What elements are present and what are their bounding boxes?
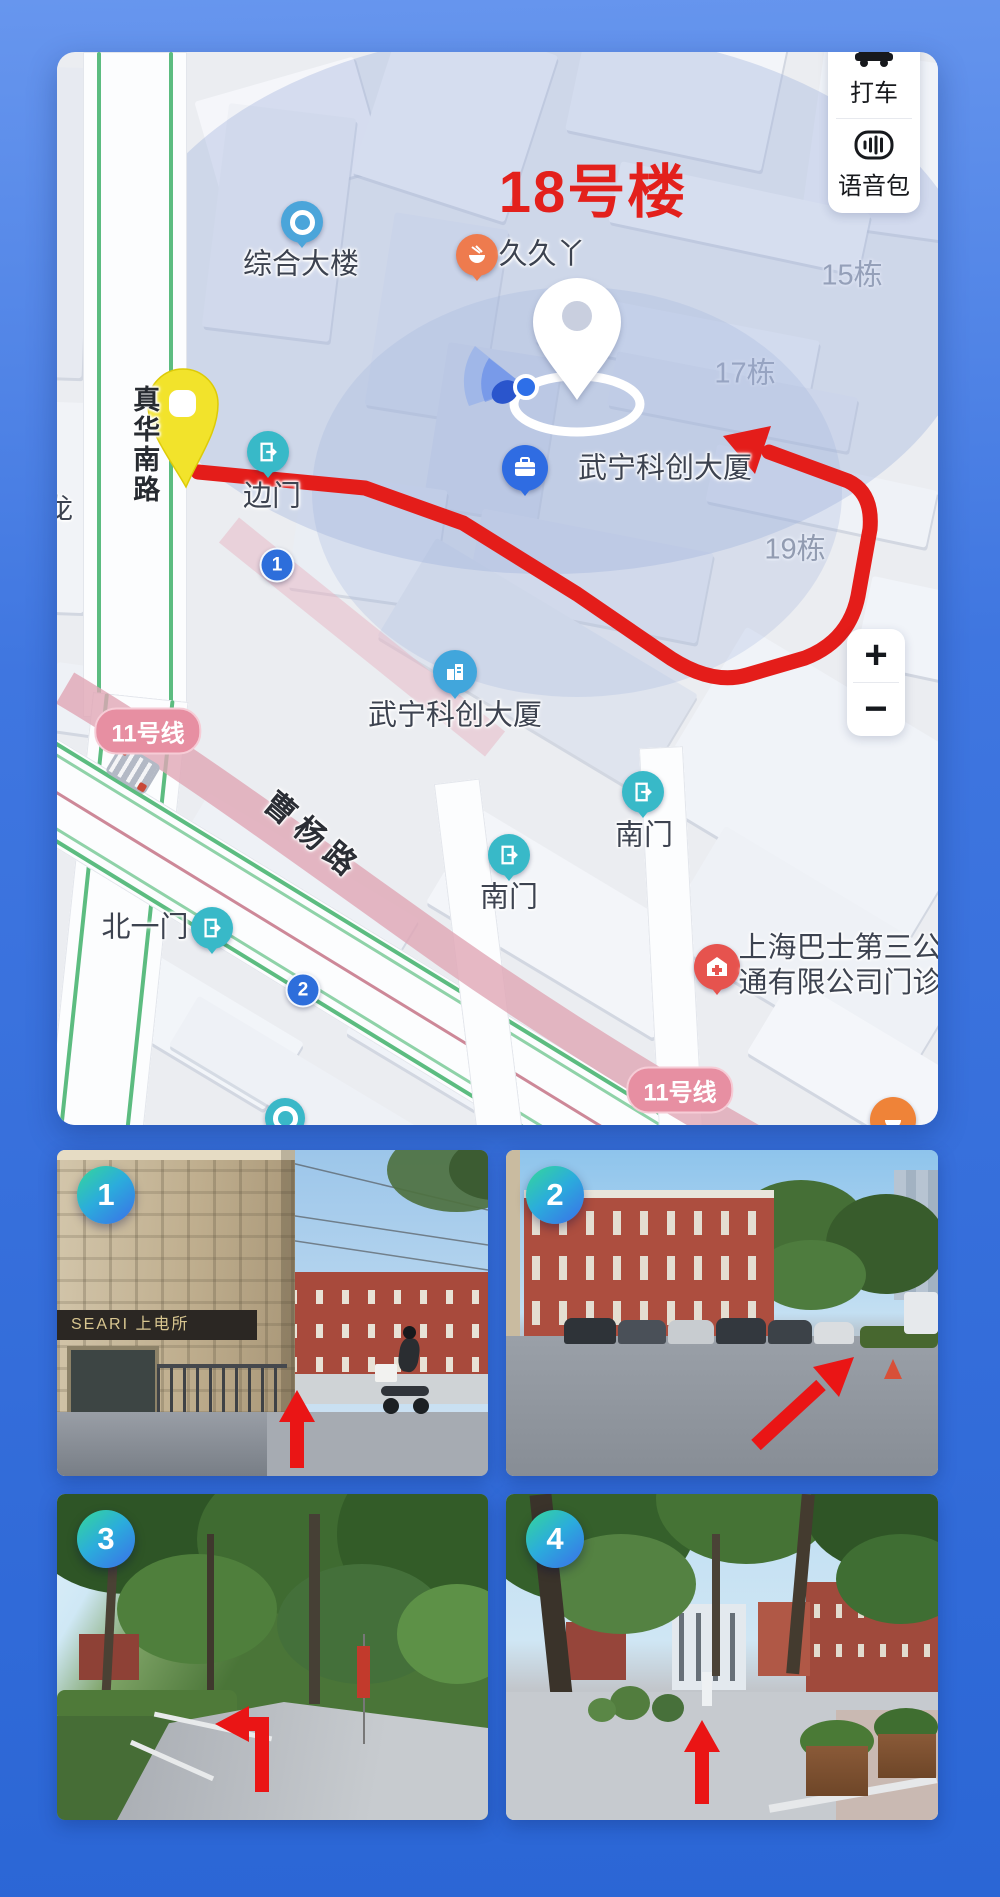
flyer-page: 1 2 18号楼 综合大楼 久久丫 15栋 17栋 19栋 武宁科创大厦 边门 … xyxy=(0,0,1000,1897)
gate-icon xyxy=(498,844,520,866)
photo-1-badge: 1 xyxy=(77,1166,135,1224)
label-clinic: 上海巴士第三公 通有限公司门诊 xyxy=(738,931,938,1001)
bowl-icon xyxy=(465,243,489,267)
building-icon xyxy=(443,660,467,684)
taxi-car-icon xyxy=(852,52,896,68)
label-snack-shop: 久久丫 xyxy=(498,238,585,273)
taxi-button[interactable]: 打车 xyxy=(828,52,920,108)
poi-north-gate-pin[interactable] xyxy=(191,907,233,949)
zoom-control: + − xyxy=(847,629,905,736)
waypoint-1-badge: 1 xyxy=(260,548,295,583)
label-wuning-tower-2: 武宁科创大厦 xyxy=(368,699,542,734)
route-photo-1: SEARI 上电所 1 xyxy=(57,1150,488,1476)
photo-4-badge: 4 xyxy=(526,1510,584,1568)
user-location-icon xyxy=(515,376,537,398)
gate-icon xyxy=(632,781,654,803)
label-side-gate: 边门 xyxy=(243,480,301,515)
gate-icon xyxy=(201,917,223,939)
poi-food-pin[interactable] xyxy=(456,234,498,276)
waypoint-2-badge: 2 xyxy=(286,973,321,1008)
photo-3-badge: 3 xyxy=(77,1510,135,1568)
destination-title: 18号楼 xyxy=(499,145,688,229)
metro-line11-badge-2: 11号线 xyxy=(626,1067,733,1114)
label-north-gate: 北一门 xyxy=(101,911,188,946)
photo-2-badge: 2 xyxy=(526,1166,584,1224)
poi-side-gate-pin[interactable] xyxy=(247,431,289,473)
voice-pack-icon xyxy=(852,129,896,161)
poi-south-gate-pin[interactable] xyxy=(622,771,664,813)
voice-pack-button[interactable]: 语音包 xyxy=(828,129,920,201)
label-wuning-tower: 武宁科创大厦 xyxy=(578,452,752,487)
poi-wuning-tower2-pin[interactable] xyxy=(433,650,477,694)
label-zhenhua-road: 真华南路 xyxy=(128,385,160,505)
panel-divider xyxy=(836,118,912,119)
zoom-in-button[interactable]: + xyxy=(847,629,905,682)
poi-south-gate2-pin[interactable] xyxy=(488,834,530,876)
map-side-panel: 打车 语音包 xyxy=(828,52,920,213)
poi-clinic-pin[interactable] xyxy=(694,944,740,990)
route-photo-3: 3 xyxy=(57,1494,488,1820)
metro-line11-badge: 11号线 xyxy=(94,708,201,755)
label-south-gate: 南门 xyxy=(615,819,673,854)
poi-wuning-tower-pin[interactable] xyxy=(502,445,548,491)
gate-icon xyxy=(257,441,279,463)
route-photo-4: 4 xyxy=(506,1494,938,1820)
dot-icon xyxy=(290,210,315,235)
label-office-building: 综合大楼 xyxy=(243,248,359,283)
zoom-out-button[interactable]: − xyxy=(847,683,905,736)
route-photo-2: 2 xyxy=(506,1150,938,1476)
poi-office-building-pin[interactable] xyxy=(281,201,323,243)
hospital-icon xyxy=(704,954,730,980)
map-screenshot[interactable]: 1 2 18号楼 综合大楼 久久丫 15栋 17栋 19栋 武宁科创大厦 边门 … xyxy=(57,52,938,1125)
label-south-gate-2: 南门 xyxy=(480,881,538,916)
briefcase-icon xyxy=(512,455,538,481)
